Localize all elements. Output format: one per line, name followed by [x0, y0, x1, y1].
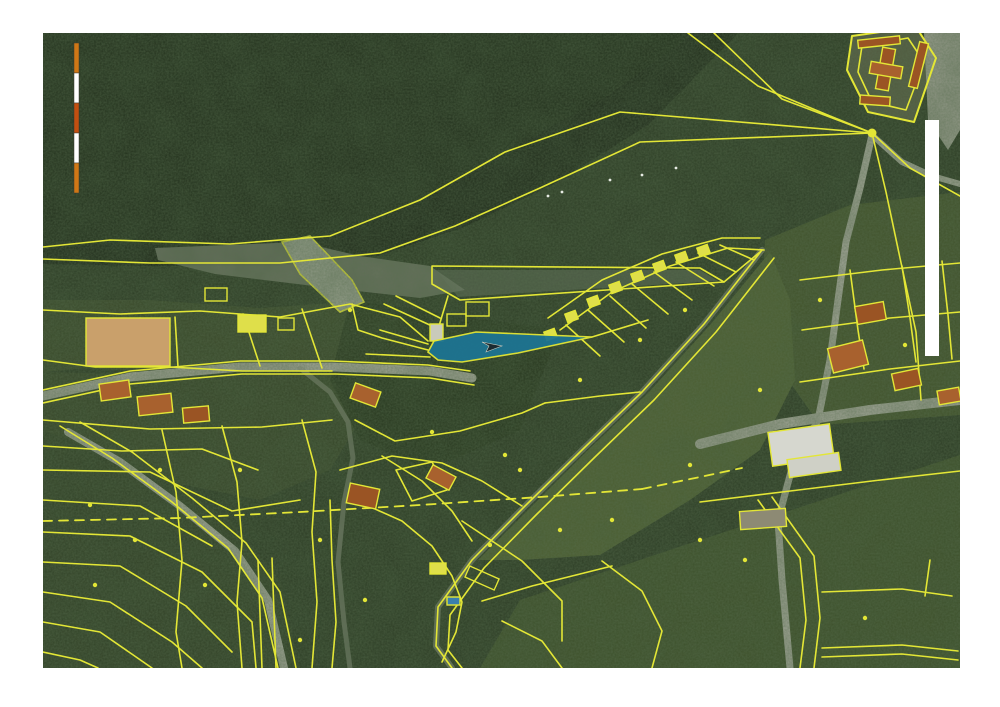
lot-marker-dot	[558, 528, 562, 532]
roof-house-3	[182, 406, 209, 423]
lot-marker-dot	[430, 430, 434, 434]
barn-bottom-right	[739, 508, 786, 529]
lot-marker-dot	[758, 388, 762, 392]
lot-marker-dot	[818, 298, 822, 302]
river-speck	[609, 179, 612, 182]
lot-marker-dot	[203, 583, 207, 587]
parcel-house-blue-1	[430, 324, 443, 341]
map-canvas	[0, 0, 1000, 707]
scale-bar-segment	[74, 43, 79, 73]
castle-roof-5	[860, 95, 891, 106]
lot-marker-dot	[363, 598, 367, 602]
river-speck	[675, 167, 678, 170]
roof-house-2	[137, 393, 173, 415]
lot-marker-dot	[610, 518, 614, 522]
yellow-building-2	[430, 563, 446, 574]
lot-marker-dot	[683, 308, 687, 312]
lot-marker-dot	[503, 453, 507, 457]
lot-marker-dot	[348, 308, 352, 312]
swimming-pool	[447, 597, 460, 605]
river-speck	[641, 174, 644, 177]
river-speck	[561, 191, 564, 194]
lot-marker-dot	[688, 463, 692, 467]
lot-marker-dot	[238, 468, 242, 472]
lot-marker-dot	[578, 378, 582, 382]
lot-marker-dot	[88, 503, 92, 507]
lot-marker-dot	[488, 543, 492, 547]
tan-field	[86, 318, 170, 366]
lot-marker-dot	[318, 538, 322, 542]
river-speck	[547, 195, 550, 198]
roof-house-1	[99, 380, 131, 401]
scale-bar-segment	[74, 133, 79, 163]
lot-marker-dot	[743, 558, 747, 562]
lot-marker-dot	[133, 538, 137, 542]
scanned-map-page	[0, 0, 1000, 707]
white-redaction-bar	[925, 120, 939, 356]
lot-marker-dot	[698, 538, 702, 542]
roof-house-10	[937, 387, 961, 405]
scale-bar-segment	[74, 103, 79, 133]
lot-marker-dot	[903, 343, 907, 347]
lot-marker-dot	[638, 338, 642, 342]
scale-bar-segment	[74, 163, 79, 193]
lot-marker-dot	[863, 616, 867, 620]
lot-marker-dot	[298, 638, 302, 642]
scale-bar-segment	[74, 73, 79, 103]
orthophoto-map	[43, 27, 961, 668]
lot-marker-dot	[158, 468, 162, 472]
boundary-junction-node	[868, 129, 877, 138]
lot-marker-dot	[518, 468, 522, 472]
yellow-building-1	[238, 315, 266, 332]
lot-marker-dot	[93, 583, 97, 587]
